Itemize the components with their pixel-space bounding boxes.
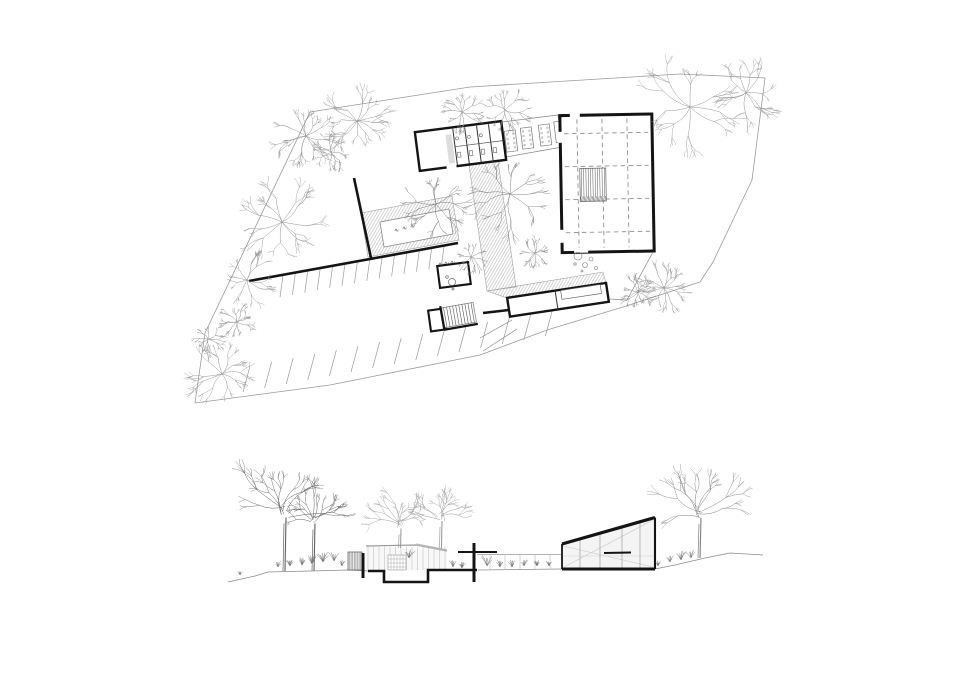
sunken-section-profile xyxy=(368,570,477,582)
wall-opening xyxy=(559,230,564,243)
architectural-drawing-page xyxy=(0,0,960,700)
grass-tuft-icon xyxy=(686,550,695,558)
parking-stall-line xyxy=(367,259,370,281)
plan-tree-icon xyxy=(184,342,256,404)
parking-stall-line xyxy=(416,334,423,360)
grass-tuft-icon xyxy=(238,571,243,575)
parking-stall-line xyxy=(404,252,407,274)
grass-tuft-icon xyxy=(449,560,456,567)
grass-tuft-icon xyxy=(286,560,294,566)
grass-tuft-icon xyxy=(299,558,305,565)
grass-tuft-icon xyxy=(508,560,515,567)
radiator-squiggle-mark xyxy=(445,262,449,264)
parking-stall-line xyxy=(394,338,401,364)
garden-stone xyxy=(581,270,583,272)
elevation-tree-icon xyxy=(285,477,348,571)
picnic-table xyxy=(520,127,533,149)
parking-stall-line xyxy=(379,257,382,279)
door-opening xyxy=(446,163,457,171)
table-outline xyxy=(520,127,533,149)
garden-stone xyxy=(589,257,593,261)
wall-opening xyxy=(558,132,563,143)
grass-tuft-icon xyxy=(666,556,673,562)
grass-tuft-icon xyxy=(328,552,339,561)
room-fixture xyxy=(452,288,454,290)
site-plan xyxy=(184,55,783,405)
garden-stone xyxy=(583,263,588,268)
parking-stall-line xyxy=(416,250,419,272)
parking-stall-line xyxy=(330,266,333,288)
grass-tuft-icon xyxy=(534,560,540,566)
grass-tuft-icon xyxy=(546,561,552,566)
grass-tuft-icon xyxy=(482,555,493,566)
wall-opening xyxy=(570,113,580,118)
parking-stall-line xyxy=(308,354,315,380)
exterior-stair xyxy=(440,300,478,330)
parking-stall-line xyxy=(459,326,466,352)
grass-tuft-icon xyxy=(459,562,466,568)
elevation-tree-icon xyxy=(647,464,753,558)
parking-stall-line xyxy=(441,245,444,267)
parking-stall-line xyxy=(437,330,444,356)
site-plan-and-section-drawing xyxy=(0,0,960,700)
small-room-walls xyxy=(437,262,471,288)
grass-tuft-icon xyxy=(676,551,686,560)
table-outline xyxy=(504,130,517,152)
ground-line xyxy=(228,570,368,582)
terrace-edge-line xyxy=(609,299,627,300)
interior-beam xyxy=(604,553,631,554)
picnic-table xyxy=(538,124,551,146)
radiator-squiggle-mark xyxy=(451,261,455,263)
parking-stall-line xyxy=(329,350,336,376)
gridded-hall-building xyxy=(557,112,654,254)
parking-stall-line xyxy=(265,362,272,388)
plan-tree-icon xyxy=(218,303,256,338)
parking-stall-line xyxy=(351,346,358,372)
elevation-tree-icon xyxy=(232,459,356,571)
small-room xyxy=(437,262,471,288)
parking-stall-line xyxy=(305,271,308,293)
parking-row xyxy=(243,310,552,392)
louvered-kiosk xyxy=(348,552,362,570)
parking-stall-line xyxy=(545,310,552,336)
parking-stall-line xyxy=(286,358,293,384)
grass-tuft-icon xyxy=(656,561,661,566)
garden-stone xyxy=(595,267,598,270)
parking-stall-line xyxy=(342,264,345,286)
grass-tuft-icon xyxy=(496,560,503,567)
parking-stall-line xyxy=(373,342,380,368)
parking-stall-line xyxy=(280,275,283,297)
parking-stall-line xyxy=(354,261,357,283)
site-wall xyxy=(249,243,458,281)
grass-tuft-icon xyxy=(521,560,528,566)
plan-tree-icon xyxy=(519,235,548,269)
picnic-table xyxy=(504,130,517,152)
ground-line xyxy=(655,553,763,569)
parking-stall-line xyxy=(317,268,320,290)
ground-line xyxy=(478,569,562,570)
grass-tuft-icon xyxy=(276,561,282,567)
table-outline xyxy=(538,124,551,146)
parking-stall-line xyxy=(392,254,395,276)
site-wall xyxy=(483,310,509,313)
parking-stall-line xyxy=(429,247,432,269)
plan-tree-icon xyxy=(239,176,329,260)
parking-stall-line xyxy=(481,322,488,348)
grass-tuft-icon xyxy=(316,552,329,562)
plan-tree-icon xyxy=(191,327,228,358)
plan-tree-icon xyxy=(713,57,782,134)
garden-stone xyxy=(574,263,576,265)
elevation-section xyxy=(228,459,763,582)
parking-stall-line xyxy=(292,273,295,295)
grass-tuft-icon xyxy=(340,560,345,566)
